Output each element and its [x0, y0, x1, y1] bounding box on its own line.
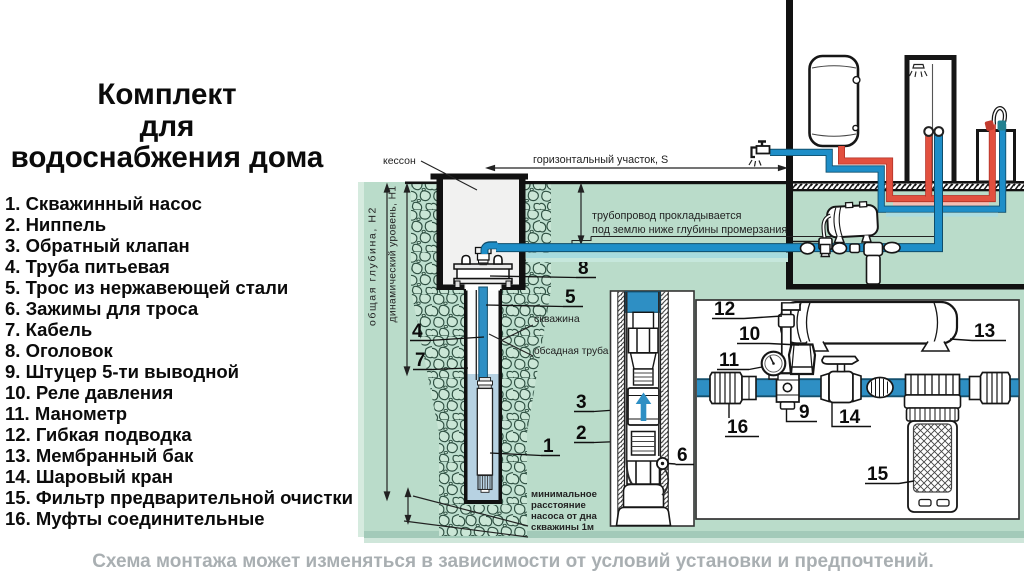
svg-text:9. Штуцер 5-ти выводной: 9. Штуцер 5-ти выводной	[5, 361, 239, 382]
svg-text:общая глубина, Н2: общая глубина, Н2	[367, 206, 379, 326]
svg-text:10. Реле давления: 10. Реле давления	[5, 382, 173, 403]
svg-text:15. Фильтр предварительной очи: 15. Фильтр предварительной очистки	[5, 487, 353, 508]
svg-text:6: 6	[677, 445, 688, 466]
svg-text:3: 3	[576, 392, 587, 413]
svg-text:10: 10	[739, 324, 760, 345]
svg-text:15: 15	[867, 464, 889, 485]
svg-text:8. Оголовок: 8. Оголовок	[5, 340, 113, 361]
svg-text:6. Зажимы для троса: 6. Зажимы для троса	[5, 298, 199, 319]
svg-text:скважина: скважина	[534, 313, 580, 325]
svg-text:Схема монтажа может изменяться: Схема монтажа может изменяться в зависим…	[92, 551, 934, 572]
svg-text:11: 11	[719, 350, 740, 371]
svg-text:13. Мембранный бак: 13. Мембранный бак	[5, 445, 194, 466]
svg-text:14. Шаровый кран: 14. Шаровый кран	[5, 466, 173, 487]
svg-text:под землю ниже глубины промерз: под землю ниже глубины промерзания	[592, 224, 787, 236]
svg-text:трубопровод прокладывается: трубопровод прокладывается	[592, 210, 742, 222]
svg-text:7: 7	[415, 350, 426, 371]
svg-text:16. Муфты соединительные: 16. Муфты соединительные	[5, 508, 265, 529]
svg-text:4. Труба питьевая: 4. Труба питьевая	[5, 256, 170, 277]
svg-text:12. Гибкая подводка: 12. Гибкая подводка	[5, 424, 192, 445]
svg-text:Комплект: Комплект	[97, 78, 236, 111]
svg-text:3. Обратный клапан: 3. Обратный клапан	[5, 235, 190, 256]
svg-text:1. Скважинный насос: 1. Скважинный насос	[5, 193, 202, 214]
svg-text:1: 1	[543, 436, 554, 457]
svg-text:обсадная труба: обсадная труба	[534, 345, 609, 357]
svg-text:горизонтальный участок, S: горизонтальный участок, S	[533, 154, 668, 166]
svg-text:расстояние: расстояние	[531, 500, 586, 511]
svg-text:9: 9	[799, 402, 810, 423]
svg-text:12: 12	[714, 299, 735, 320]
svg-text:4: 4	[412, 321, 423, 342]
svg-text:2. Ниппель: 2. Ниппель	[5, 214, 106, 235]
svg-text:5. Трос из нержавеющей стали: 5. Трос из нержавеющей стали	[5, 277, 288, 298]
svg-text:11. Манометр: 11. Манометр	[5, 403, 127, 424]
svg-text:кессон: кессон	[383, 155, 416, 167]
svg-text:минимальное: минимальное	[531, 489, 597, 500]
svg-text:скважины 1м: скважины 1м	[531, 522, 594, 533]
svg-text:насоса от дна: насоса от дна	[531, 511, 598, 522]
svg-text:14: 14	[839, 407, 861, 428]
svg-text:для: для	[140, 110, 195, 143]
svg-text:7. Кабель: 7. Кабель	[5, 319, 92, 340]
svg-text:динамический уровень, Н1: динамический уровень, Н1	[388, 186, 399, 323]
svg-text:водоснабжения дома: водоснабжения дома	[11, 141, 324, 174]
svg-text:13: 13	[974, 321, 995, 342]
svg-text:5: 5	[565, 287, 576, 308]
svg-text:2: 2	[576, 423, 587, 444]
svg-text:16: 16	[727, 417, 748, 438]
